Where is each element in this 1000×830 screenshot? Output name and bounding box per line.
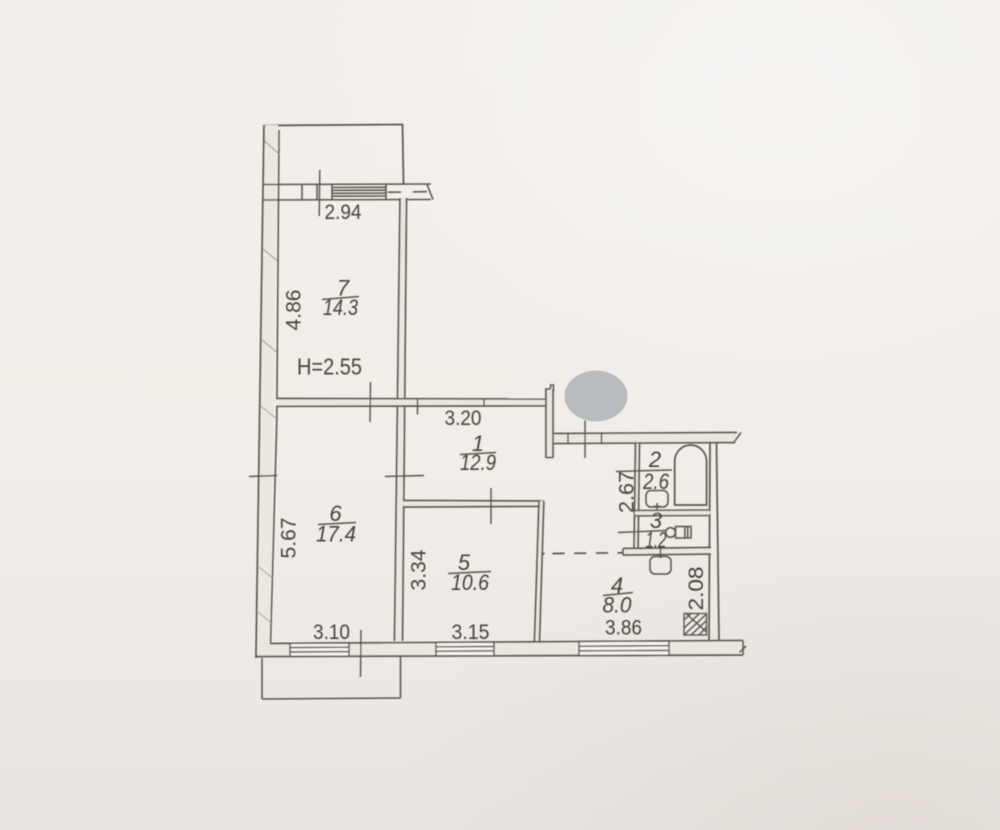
svg-text:2.67: 2.67 [616,471,639,513]
svg-text:3.20: 3.20 [445,407,482,430]
svg-text:H=2.55: H=2.55 [297,354,362,380]
svg-text:14.3: 14.3 [323,295,359,320]
svg-text:12.9: 12.9 [460,450,496,475]
svg-text:17.4: 17.4 [316,522,356,547]
svg-text:4.86: 4.86 [283,290,306,331]
svg-text:3.86: 3.86 [605,617,642,640]
svg-text:3.15: 3.15 [452,621,490,644]
svg-text:2.94: 2.94 [325,201,362,224]
svg-text:1.2: 1.2 [646,528,667,553]
svg-text:2.08: 2.08 [685,567,708,611]
svg-text:3.34: 3.34 [408,549,431,590]
svg-text:5.67: 5.67 [278,518,301,559]
svg-text:3.10: 3.10 [313,621,350,644]
svg-text:8.0: 8.0 [603,593,633,618]
svg-text:10.6: 10.6 [451,570,490,595]
